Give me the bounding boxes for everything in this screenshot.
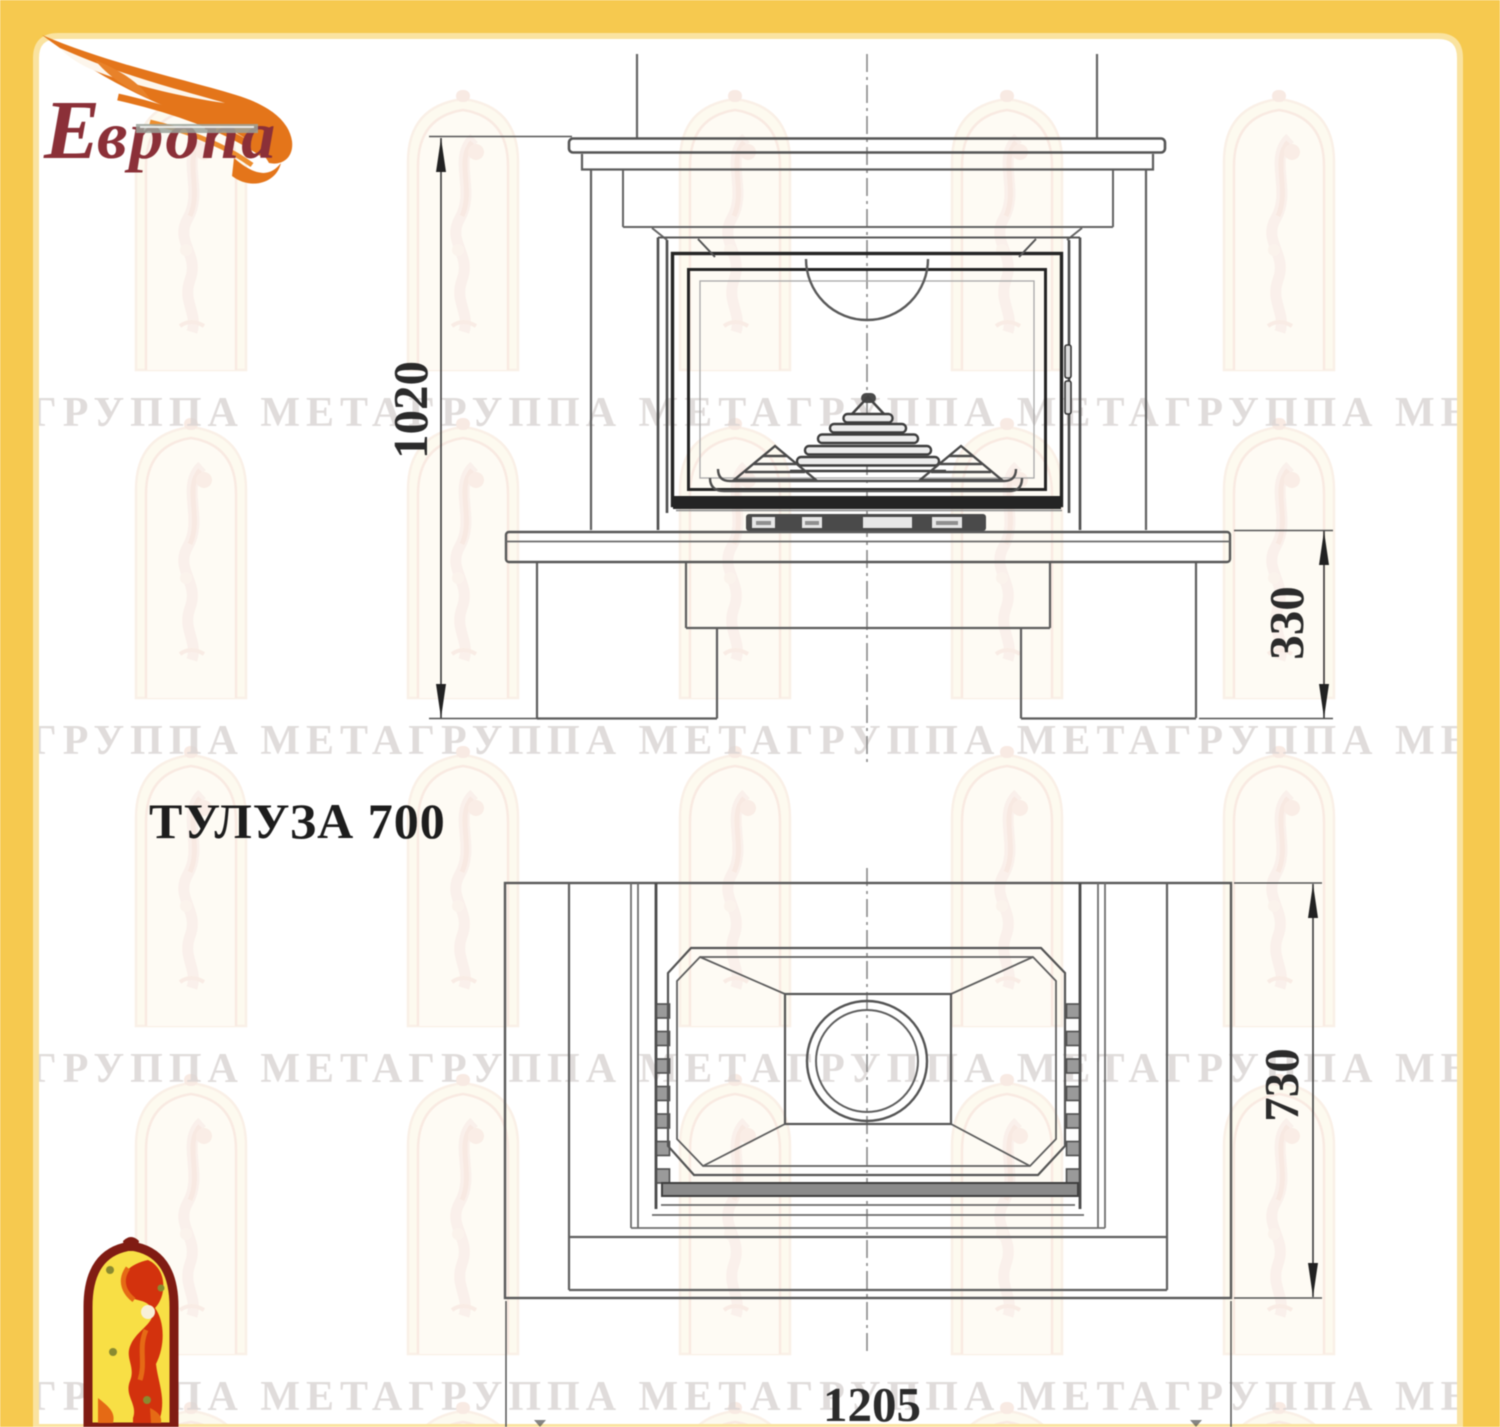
svg-text:ГРУППА МЕТАГРУППА МЕТАГРУППА М: ГРУППА МЕТАГРУППА МЕТАГРУППА МЕТАГРУППА … (30, 390, 1500, 436)
svg-text:ТУЛУЗА 700: ТУЛУЗА 700 (149, 793, 446, 849)
svg-text:1020: 1020 (383, 361, 438, 459)
svg-text:ГРУППА МЕТАГРУППА МЕТАГРУППА М: ГРУППА МЕТАГРУППА МЕТАГРУППА МЕТАГРУППА … (30, 718, 1500, 764)
svg-text:Е: Е (43, 84, 100, 177)
svg-text:ГРУППА МЕТАГРУППА МЕТАГРУППА М: ГРУППА МЕТАГРУППА МЕТАГРУППА МЕТАГРУППА … (30, 1374, 1500, 1420)
svg-text:330: 330 (1259, 586, 1314, 660)
svg-text:1205: 1205 (823, 1377, 921, 1427)
svg-text:730: 730 (1254, 1048, 1309, 1122)
svg-text:вропа: вропа (97, 97, 277, 173)
